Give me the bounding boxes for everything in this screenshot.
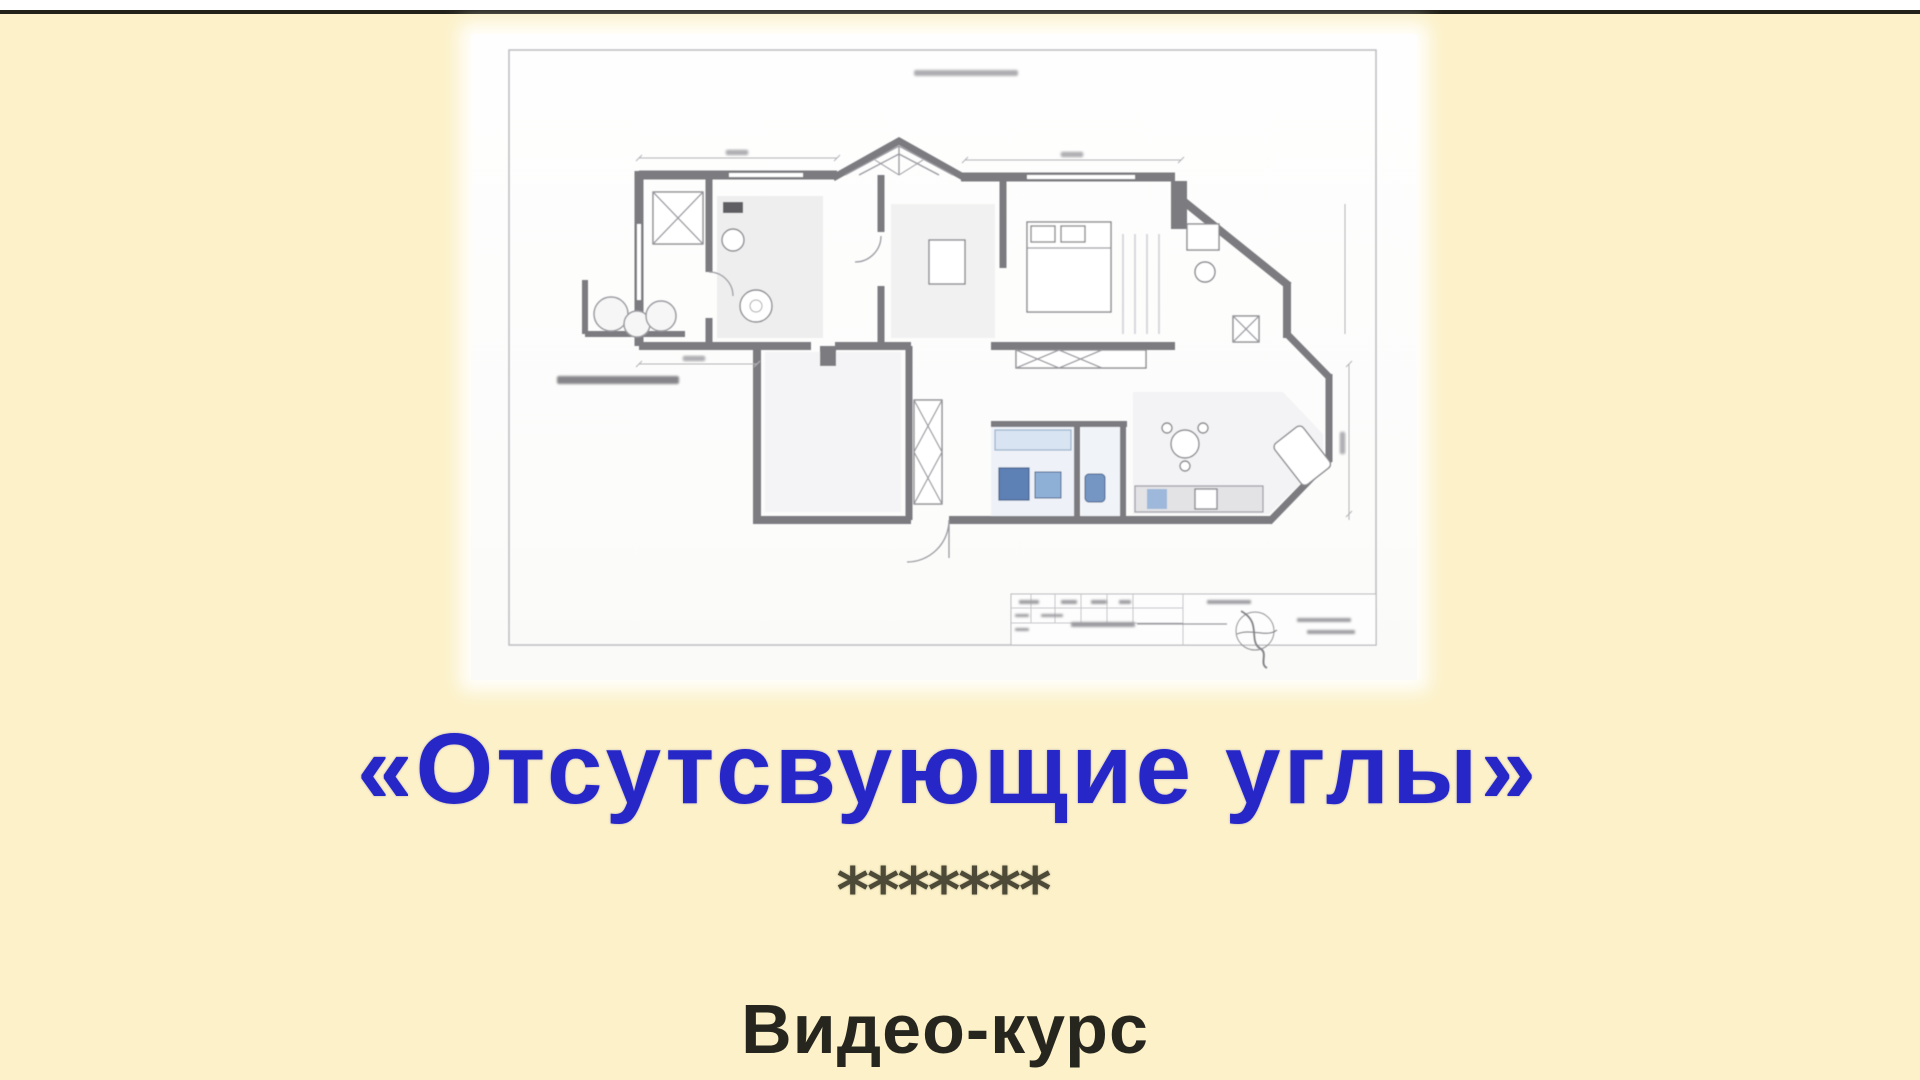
slide-background: «Отсутсвующие углы» ******* Видео-курс	[0, 14, 1920, 1080]
washing-machine	[999, 468, 1029, 500]
kitchen-table	[1171, 430, 1199, 458]
sheet-caption-top	[914, 70, 1018, 76]
floor-plan-image	[471, 34, 1417, 680]
course-subtitle: Видео-курс	[0, 991, 1890, 1068]
floor-plan-drawing	[471, 34, 1417, 680]
top-white-strip	[0, 0, 1920, 10]
course-title: «Отсутсвующие углы»	[0, 714, 1896, 824]
sheet-caption-left	[557, 376, 679, 384]
asterisk-separator: *******	[0, 860, 1886, 922]
toilet	[1085, 474, 1105, 502]
title-block	[1011, 594, 1376, 668]
rug-hatch	[1123, 234, 1159, 334]
